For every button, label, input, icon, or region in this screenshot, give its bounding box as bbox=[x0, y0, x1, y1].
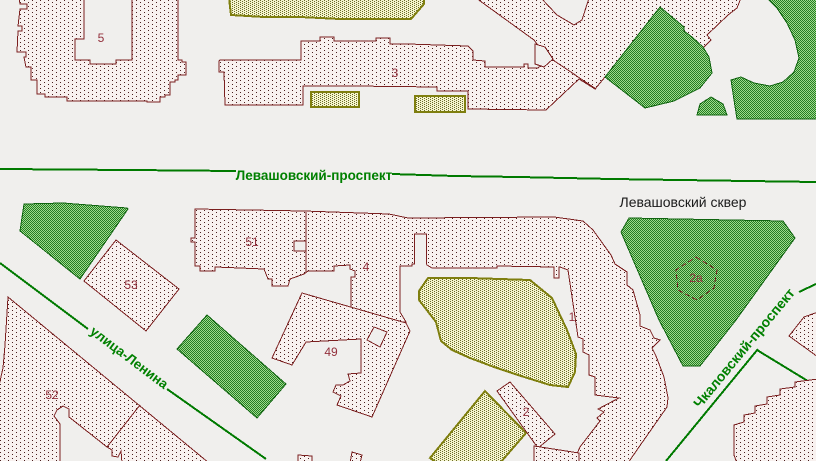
svg-text:1: 1 bbox=[569, 310, 576, 324]
svg-text:4: 4 bbox=[363, 260, 370, 274]
svg-text:Левашовский сквер: Левашовский сквер bbox=[620, 194, 747, 210]
svg-text:2: 2 bbox=[523, 405, 530, 419]
svg-text:49: 49 bbox=[324, 345, 338, 359]
svg-text:5: 5 bbox=[98, 31, 105, 45]
svg-text:52: 52 bbox=[45, 388, 59, 402]
svg-text:51: 51 bbox=[245, 235, 259, 249]
svg-text:Левашовский-проспект: Левашовский-проспект bbox=[236, 168, 393, 183]
svg-text:2a: 2a bbox=[689, 271, 703, 285]
svg-text:3: 3 bbox=[392, 66, 399, 80]
svg-text:53: 53 bbox=[124, 278, 138, 292]
